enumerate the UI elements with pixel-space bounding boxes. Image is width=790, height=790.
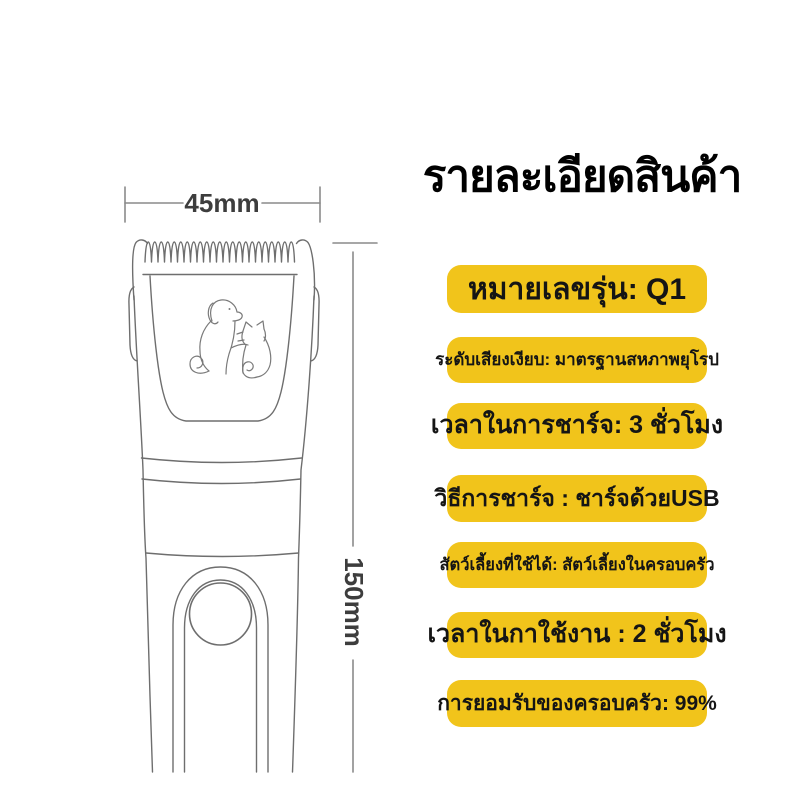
spec-badge-family-acceptance-label: การยอมรับของครอบครัว: 99% (437, 692, 717, 715)
spec-badge-noise-level: ระดับเสียงเงียบ: มาตรฐานสหภาพยุโรป (447, 337, 707, 383)
power-button (190, 583, 252, 645)
width-dim-label: 45mm (184, 188, 259, 218)
handle-cutout-outer (173, 567, 268, 772)
dog-back (200, 321, 211, 371)
grip-band-line-3 (146, 553, 299, 557)
dog-ear (208, 303, 218, 324)
handle-cutout-inner (185, 580, 257, 772)
dog-head (211, 300, 243, 321)
cat-right-ear (257, 321, 264, 329)
dog-tail-curl (190, 356, 209, 373)
spec-badge-family-acceptance: การยอมรับของครอบครัว: 99% (447, 680, 707, 727)
clipper-head-right-corner (297, 240, 315, 300)
spec-badge-charge-method: วิธีการชาร์จ : ชาร์จด้วยUSB (447, 475, 707, 522)
cat-tail-curl (243, 362, 257, 378)
handle-cutout (173, 567, 268, 772)
clipper-teeth (145, 242, 295, 262)
dog-eye (229, 308, 231, 310)
spec-badge-usage-time-label: เวลาในกาใช้งาน : 2 ชั่วโมง (427, 621, 726, 649)
height-dimension: 150mm (333, 243, 377, 772)
pets-illustration (190, 300, 271, 378)
clipper-outline (129, 240, 319, 772)
spec-badge-usage-time: เวลาในกาใช้งาน : 2 ชั่วโมง (447, 612, 707, 658)
clipper-diagram: 45mm 150mm (0, 0, 400, 790)
cat-left-ear (243, 322, 252, 331)
spec-badge-charge-time-label: เวลาในการชาร์จ: 3 ชั่วโมง (431, 412, 723, 440)
spec-badge-applicable-pets-label: สัตว์เลี้ยงที่ใช้ได้: สัตว์เลี้ยงในครอบค… (439, 556, 714, 574)
spec-badge-charge-time: เวลาในการชาร์จ: 3 ชั่วโมง (447, 403, 707, 449)
product-detail-page: 45mm 150mm (0, 0, 790, 790)
height-dim-label: 150mm (339, 557, 369, 647)
spec-badge-applicable-pets: สัตว์เลี้ยงที่ใช้ได้: สัตว์เลี้ยงในครอบค… (447, 542, 707, 588)
spec-badge-model: หมายเลขรุ่น: Q1 (447, 265, 707, 313)
cat-head-left (242, 331, 246, 345)
spec-badge-noise-level-label: ระดับเสียงเงียบ: มาตรฐานสหภาพยุโรป (435, 351, 719, 370)
grip-band-line-1 (142, 458, 302, 463)
cat-illustration (237, 321, 271, 378)
spec-badge-model-label: หมายเลขรุ่น: Q1 (468, 273, 686, 306)
grip-band-line-2 (142, 479, 301, 484)
page-title: รายละเอียดสินค้า (404, 151, 760, 204)
face-panel (150, 276, 294, 421)
cat-back (257, 337, 271, 377)
spec-badge-charge-method-label: วิธีการชาร์จ : ชาร์จด้วยUSB (434, 486, 719, 511)
dog-front-leg (226, 321, 235, 374)
width-dimension: 45mm (125, 187, 320, 222)
body-right-edge (293, 296, 315, 772)
dog-illustration (190, 300, 248, 374)
body-left-edge (134, 296, 153, 772)
